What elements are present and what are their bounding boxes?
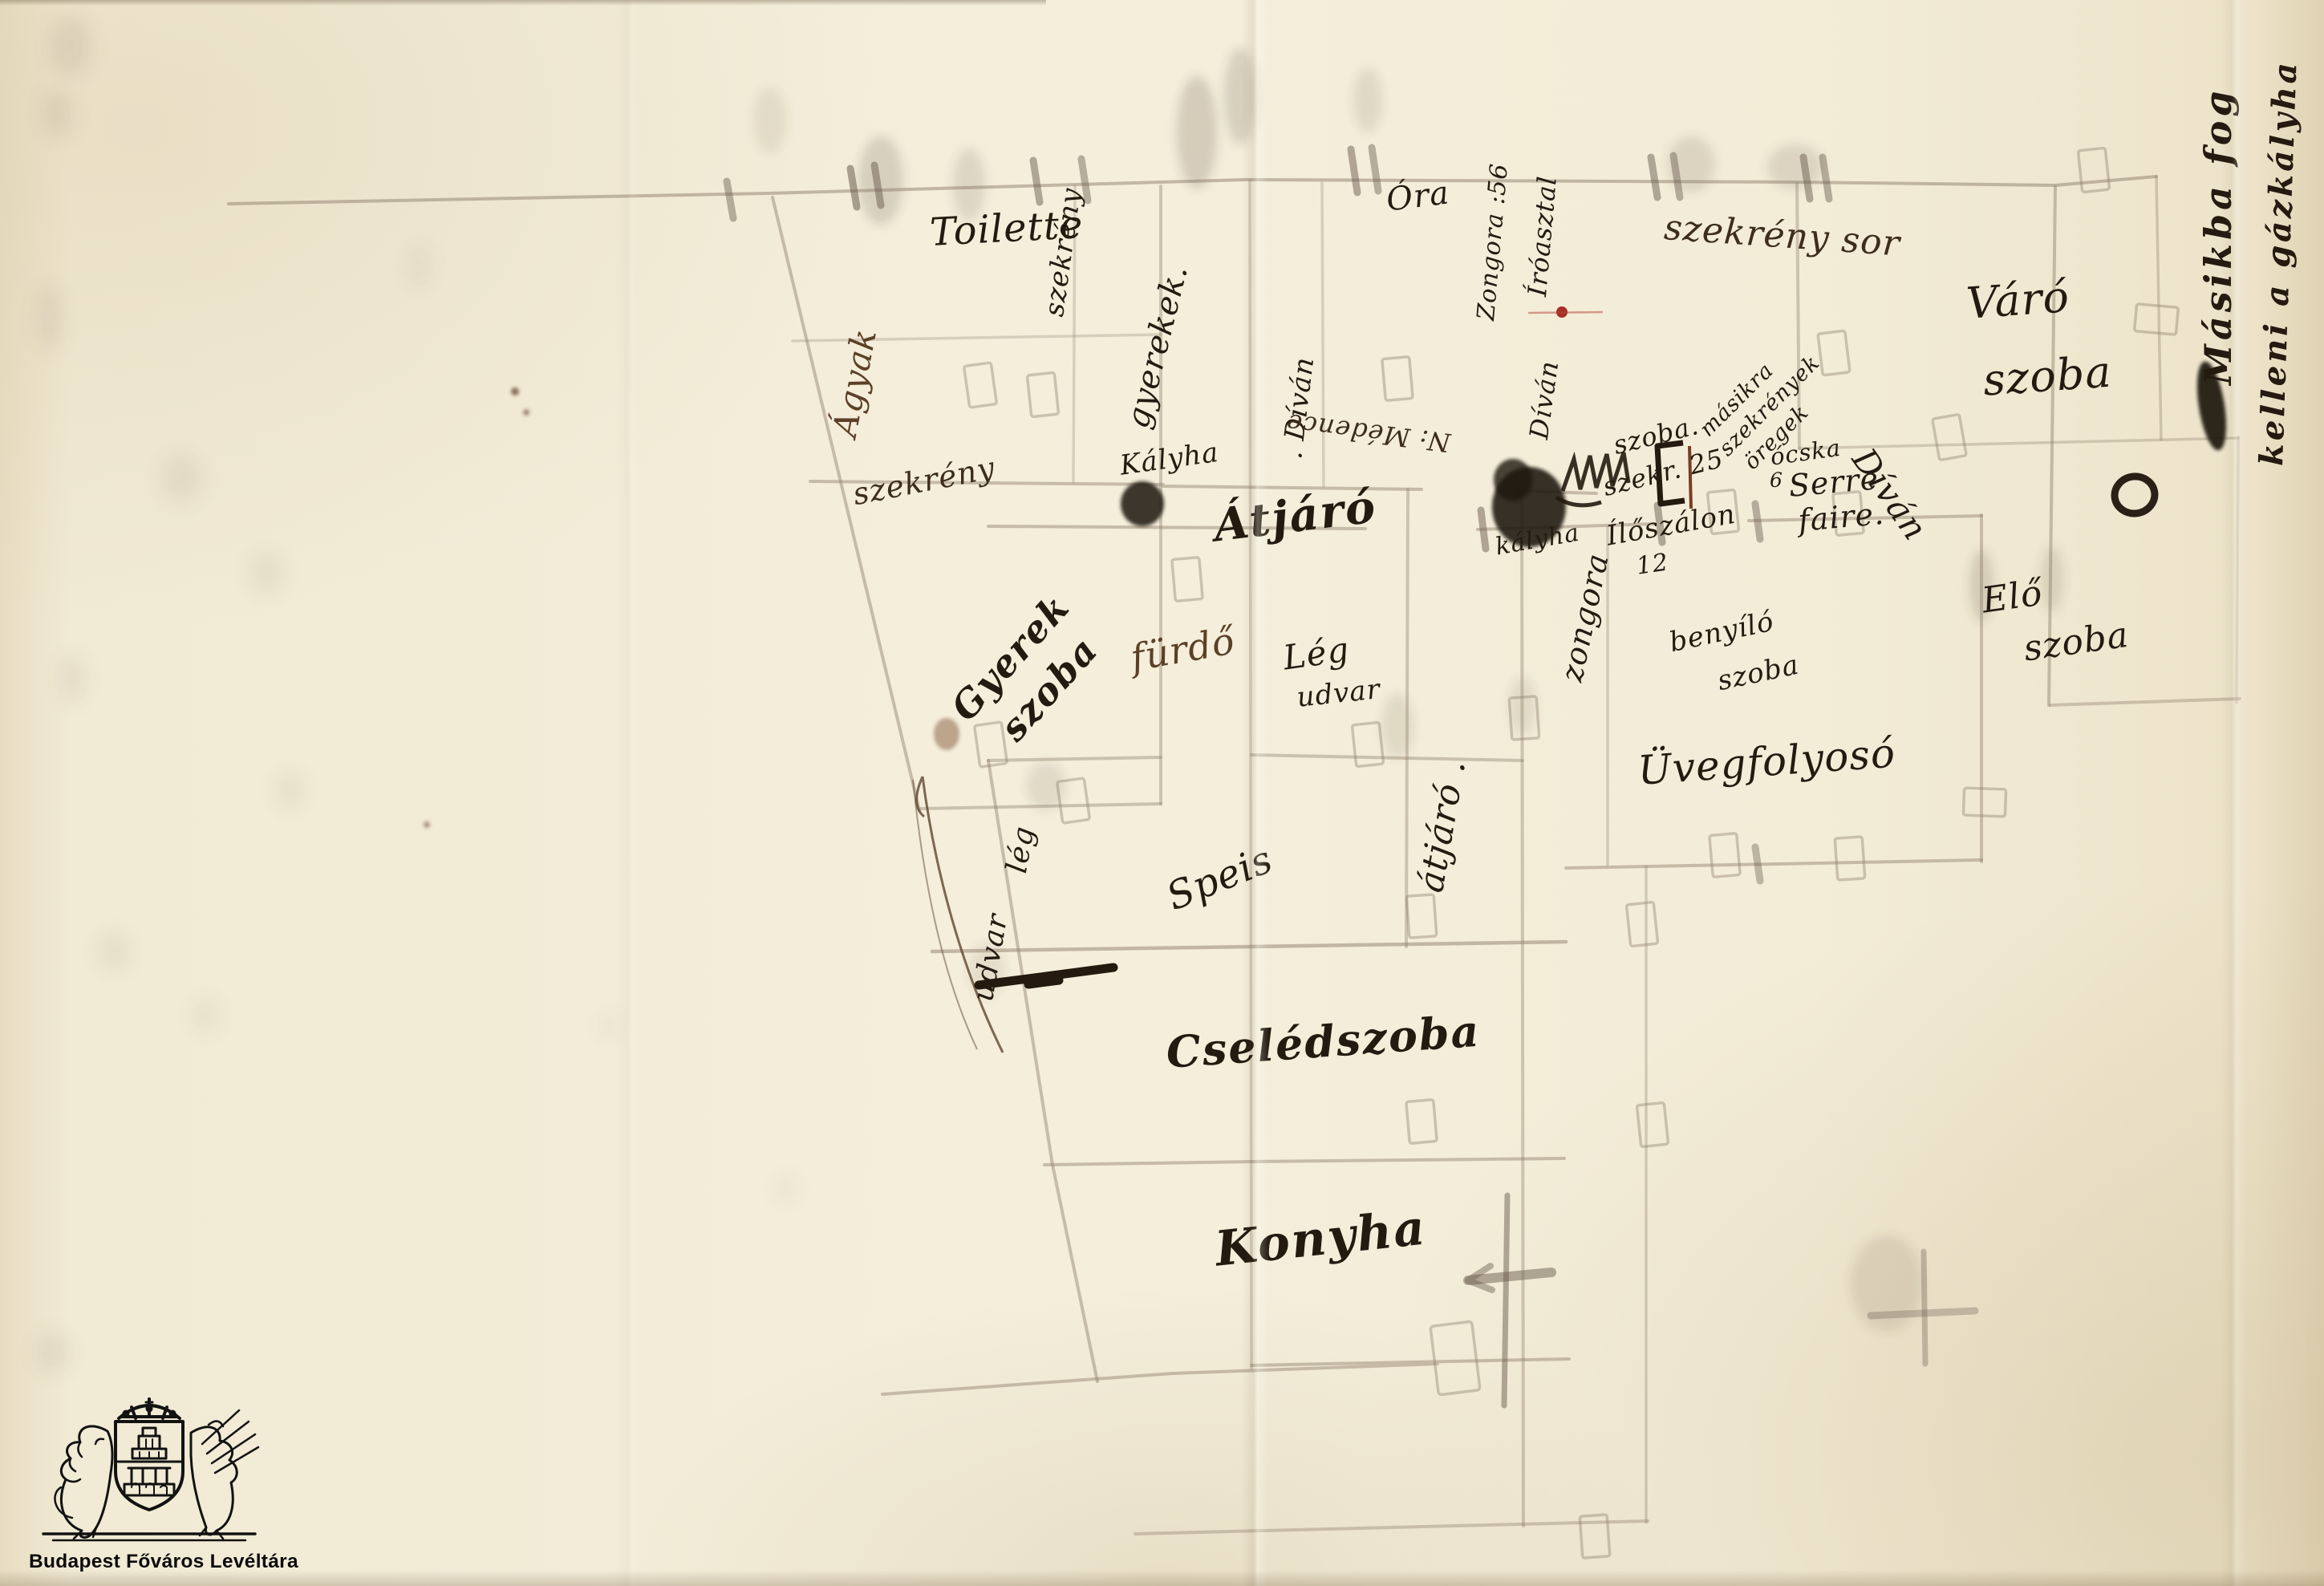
margin-note-line1: Másikba fog xyxy=(2200,87,2237,385)
note-label-iloszalon-num: 12 xyxy=(1635,550,1670,578)
paper-bleedthrough-spots xyxy=(35,16,796,1373)
ink-stains xyxy=(424,387,959,828)
ink-blot-small xyxy=(1121,481,1164,526)
floorplan-sketch-drawing xyxy=(0,0,2324,1586)
furniture-label-ocska-num: 6 xyxy=(1770,470,1783,490)
archive-coat-of-arms-icon xyxy=(29,1397,270,1548)
circle-mark xyxy=(2112,474,2157,517)
room-label-leg-2: lég xyxy=(1003,824,1040,875)
varo-line1: Váró xyxy=(1964,255,2109,343)
room-label-leg: Lég xyxy=(1281,632,1352,675)
furniture-label-ora: Óra xyxy=(1385,176,1451,216)
scan-edge-top xyxy=(0,0,1046,6)
red-line-mark xyxy=(1528,312,1603,313)
room-label-udvar: udvar xyxy=(1296,675,1381,712)
room-label-varo-szoba: Váró szoba xyxy=(1964,255,2115,420)
archive-watermark-logo xyxy=(29,1397,286,1552)
room-label-elo: Elő xyxy=(1980,575,2045,619)
archive-logo-caption: Budapest Főváros Levéltára xyxy=(29,1551,298,1573)
scanned-floorplan-sheet: Toilette szekrény gyerekek. Ágyak szekré… xyxy=(0,0,2324,1586)
scan-edge-bottom xyxy=(0,1570,2324,1586)
varo-line2: szoba xyxy=(1981,333,2115,420)
